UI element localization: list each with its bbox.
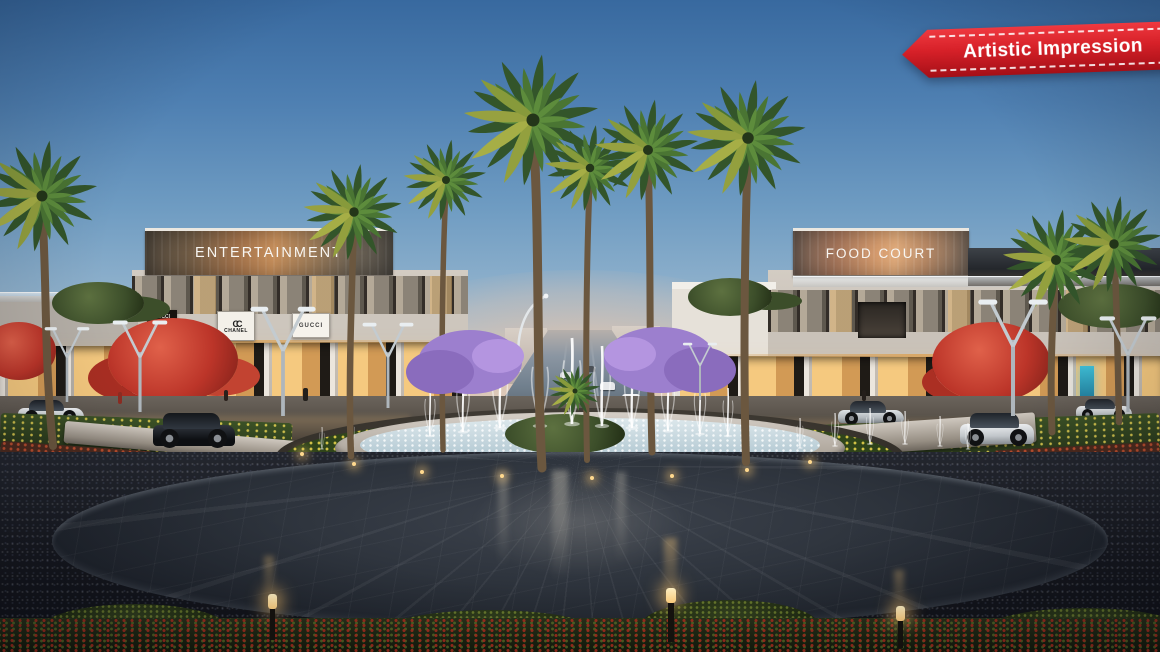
artistic-impression-ribbon: Artistic Impression (901, 21, 1160, 78)
artistic-impression-render: ENTERTAINMENT GUCCI CC CHANEL GUCCI FOOD (0, 0, 1160, 652)
vignette (0, 0, 1160, 652)
ribbon-label: Artistic Impression (933, 21, 1160, 77)
